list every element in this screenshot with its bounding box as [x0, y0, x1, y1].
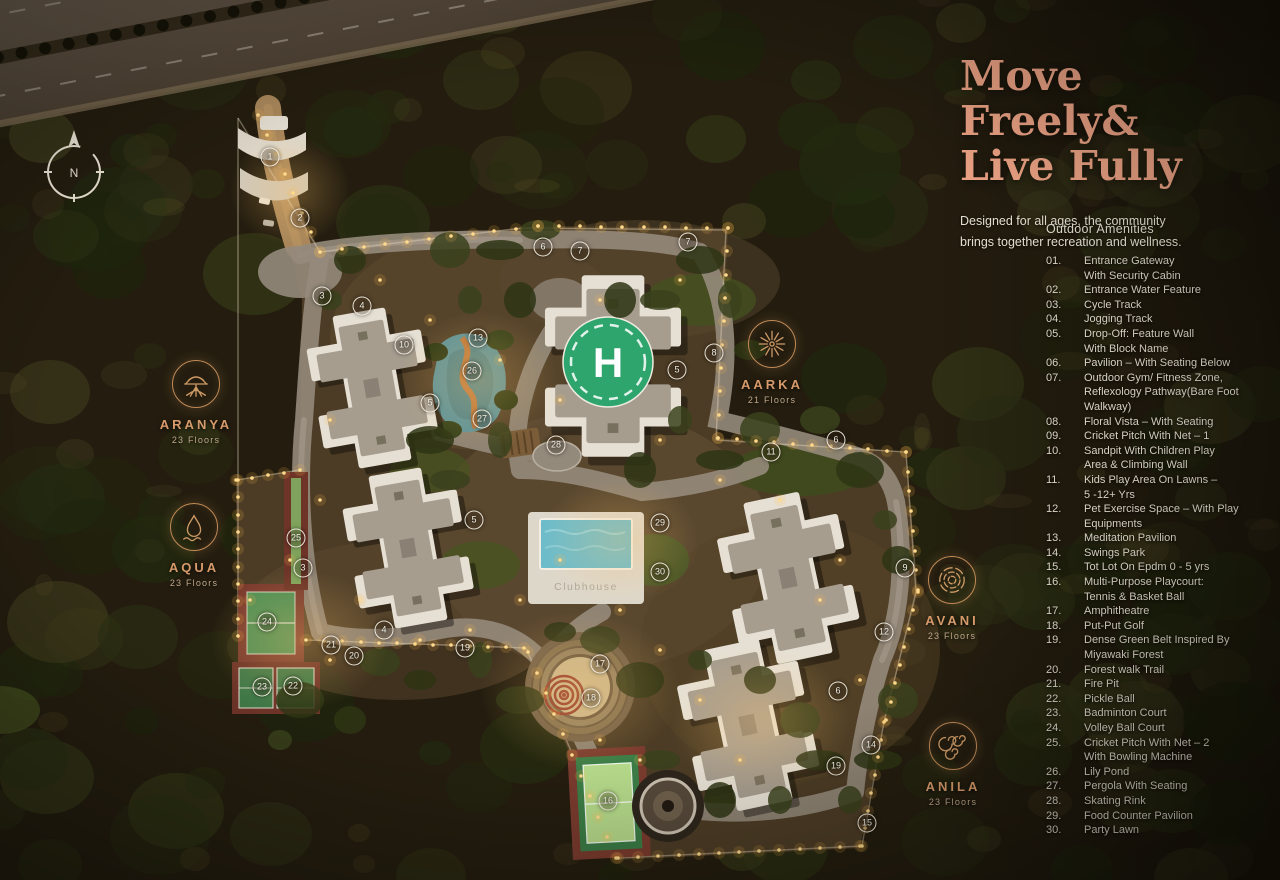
amenity-number: 11. — [1046, 473, 1084, 502]
amenity-item-29: 29.Food Counter Pavilion — [1046, 809, 1268, 824]
tower-label-aqua: AQUA23 Floors — [119, 503, 269, 588]
amenity-item-23: 23.Badminton Court — [1046, 706, 1268, 721]
amenity-text: Drop-Off: Feature Wall With Block Name — [1084, 327, 1194, 356]
amenity-item-30: 30.Party Lawn — [1046, 823, 1268, 838]
tower-name: AQUA — [169, 560, 219, 575]
droplet-icon — [170, 503, 218, 551]
tower-floors: 23 Floors — [170, 578, 218, 588]
amenity-item-11: 11.Kids Play Area On Lawns – 5 -12+ Yrs — [1046, 473, 1268, 502]
amenity-text: Amphitheatre — [1084, 604, 1149, 619]
map-marker-7: 7 — [571, 242, 590, 261]
amenity-item-07: 07.Outdoor Gym/ Fitness Zone, Reflexolog… — [1046, 371, 1268, 415]
amenity-number: 05. — [1046, 327, 1084, 356]
amenity-number: 25. — [1046, 736, 1084, 765]
tower-label-anila: ANILA23 Floors — [878, 722, 1028, 807]
tower-floors: 23 Floors — [172, 435, 220, 445]
map-marker-11: 11 — [762, 443, 781, 462]
amenity-number: 16. — [1046, 575, 1084, 604]
amenity-text: Jogging Track — [1084, 312, 1152, 327]
amenity-text: Lily Pond — [1084, 765, 1129, 780]
map-marker-27: 27 — [473, 410, 492, 429]
amenity-text: Swings Park — [1084, 546, 1145, 561]
amenity-text: Entrance Water Feature — [1084, 283, 1201, 298]
amenity-item-20: 20.Forest walk Trail — [1046, 663, 1268, 678]
amenity-text: Cricket Pitch With Net – 1 — [1084, 429, 1209, 444]
compass-north-label: N — [70, 166, 79, 180]
amenity-number: 30. — [1046, 823, 1084, 838]
amenity-item-14: 14.Swings Park — [1046, 546, 1268, 561]
amenity-item-03: 03.Cycle Track — [1046, 298, 1268, 313]
amenity-text: Entrance Gateway With Security Cabin — [1084, 254, 1181, 283]
map-marker-2: 2 — [291, 209, 310, 228]
amenity-number: 03. — [1046, 298, 1084, 313]
amenity-text: Cycle Track — [1084, 298, 1141, 313]
water-feature — [632, 770, 704, 842]
map-marker-21: 21 — [322, 636, 341, 655]
map-marker-10: 10 — [395, 336, 414, 355]
amenity-number: 28. — [1046, 794, 1084, 809]
amenity-number: 06. — [1046, 356, 1084, 371]
map-marker-22: 22 — [284, 677, 303, 696]
map-marker-19: 19 — [456, 639, 475, 658]
map-marker-20: 20 — [345, 647, 364, 666]
map-marker-7: 7 — [679, 233, 698, 252]
amenity-item-02: 02.Entrance Water Feature — [1046, 283, 1268, 298]
amenity-number: 29. — [1046, 809, 1084, 824]
amenity-number: 17. — [1046, 604, 1084, 619]
map-marker-25: 25 — [287, 529, 306, 548]
amenity-number: 24. — [1046, 721, 1084, 736]
amenity-text: Meditation Pavilion — [1084, 531, 1176, 546]
amenity-number: 23. — [1046, 706, 1084, 721]
tower-label-aranya: ARANYA23 Floors — [121, 360, 271, 445]
title-line-2: Live Fully — [960, 144, 1260, 189]
amenity-item-04: 04.Jogging Track — [1046, 312, 1268, 327]
map-marker-16: 16 — [599, 792, 618, 811]
amenity-number: 15. — [1046, 560, 1084, 575]
helipad: H — [563, 317, 653, 407]
amenity-item-05: 05.Drop-Off: Feature Wall With Block Nam… — [1046, 327, 1268, 356]
map-marker-30: 30 — [651, 563, 670, 582]
map-marker-6: 6 — [829, 682, 848, 701]
map-marker-29: 29 — [651, 514, 670, 533]
map-marker-13: 13 — [469, 329, 488, 348]
amenity-number: 19. — [1046, 633, 1084, 662]
amenity-text: Pavilion – With Seating Below — [1084, 356, 1230, 371]
amenity-item-21: 21.Fire Pit — [1046, 677, 1268, 692]
amenity-item-08: 08.Floral Vista – With Seating — [1046, 415, 1268, 430]
helipad-label: H — [593, 339, 623, 386]
amenity-text: Forest walk Trail — [1084, 663, 1164, 678]
tower-label-avani: AVANI23 Floors — [877, 556, 1027, 641]
amenity-item-10: 10.Sandpit With Children Play Area & Cli… — [1046, 444, 1268, 473]
amenity-item-17: 17.Amphitheatre — [1046, 604, 1268, 619]
map-marker-3: 3 — [294, 559, 313, 578]
amenity-number: 08. — [1046, 415, 1084, 430]
amenity-item-22: 22.Pickle Ball — [1046, 692, 1268, 707]
amenity-number: 22. — [1046, 692, 1084, 707]
map-marker-5: 5 — [465, 511, 484, 530]
amenity-text: Dense Green Belt Inspired By Miyawaki Fo… — [1084, 633, 1230, 662]
tower-label-aarka: AARKA21 Floors — [697, 320, 847, 405]
amenity-number: 27. — [1046, 779, 1084, 794]
map-marker-26: 26 — [463, 362, 482, 381]
amenity-item-18: 18.Put-Put Golf — [1046, 619, 1268, 634]
map-marker-15: 15 — [858, 814, 877, 833]
amenity-item-09: 09.Cricket Pitch With Net – 1 — [1046, 429, 1268, 444]
amenity-item-13: 13.Meditation Pavilion — [1046, 531, 1268, 546]
tower-name: AARKA — [741, 377, 803, 392]
map-marker-17: 17 — [591, 655, 610, 674]
compass-rose: N — [36, 128, 112, 208]
spiral-icon — [929, 722, 977, 770]
amenity-text: Pet Exercise Space – With Play Equipment… — [1084, 502, 1239, 531]
amenity-text: Fire Pit — [1084, 677, 1119, 692]
amenity-text: Cricket Pitch With Net – 2 With Bowling … — [1084, 736, 1209, 765]
amenity-text: Multi-Purpose Playcourt: Tennis & Basket… — [1084, 575, 1204, 604]
map-marker-6: 6 — [827, 431, 846, 450]
map-marker-23: 23 — [253, 678, 272, 697]
site-plan-page: Clubhouse H — [0, 0, 1280, 880]
amenity-item-16: 16.Multi-Purpose Playcourt: Tennis & Bas… — [1046, 575, 1268, 604]
amenity-item-26: 26.Lily Pond — [1046, 765, 1268, 780]
amenity-text: Food Counter Pavilion — [1084, 809, 1193, 824]
map-marker-19: 19 — [827, 757, 846, 776]
amenity-text: Skating Rink — [1084, 794, 1146, 809]
tower-floors: 21 Floors — [748, 395, 796, 405]
tower-name: ARANYA — [160, 417, 232, 432]
amenity-text: Outdoor Gym/ Fitness Zone, Reflexology P… — [1084, 371, 1239, 415]
amenity-number: 02. — [1046, 283, 1084, 298]
amenity-number: 20. — [1046, 663, 1084, 678]
amenity-number: 10. — [1046, 444, 1084, 473]
amenity-text: Pickle Ball — [1084, 692, 1135, 707]
amenity-item-12: 12.Pet Exercise Space – With Play Equipm… — [1046, 502, 1268, 531]
map-marker-4: 4 — [375, 621, 394, 640]
amenity-number: 09. — [1046, 429, 1084, 444]
tower-name: AVANI — [925, 613, 979, 628]
amenity-number: 04. — [1046, 312, 1084, 327]
map-marker-24: 24 — [258, 613, 277, 632]
amenity-item-28: 28.Skating Rink — [1046, 794, 1268, 809]
amenity-text: Sandpit With Children Play Area & Climbi… — [1084, 444, 1215, 473]
map-marker-5: 5 — [668, 361, 687, 380]
amenity-item-06: 06.Pavilion – With Seating Below — [1046, 356, 1268, 371]
tower-name: ANILA — [926, 779, 981, 794]
page-title: Move Freely& Live Fully — [960, 54, 1260, 189]
sun-icon — [748, 320, 796, 368]
amenity-item-25: 25.Cricket Pitch With Net – 2 With Bowli… — [1046, 736, 1268, 765]
amenity-item-19: 19.Dense Green Belt Inspired By Miyawaki… — [1046, 633, 1268, 662]
amenity-text: Volley Ball Court — [1084, 721, 1165, 736]
amenity-number: 01. — [1046, 254, 1084, 283]
tower-floors: 23 Floors — [929, 797, 977, 807]
map-marker-3: 3 — [313, 287, 332, 306]
amenity-text: Floral Vista – With Seating — [1084, 415, 1213, 430]
amenities-list: 01.Entrance Gateway With Security Cabin0… — [1046, 254, 1268, 838]
rings-icon — [928, 556, 976, 604]
amenity-number: 26. — [1046, 765, 1084, 780]
amenities-panel: Outdoor Amenities 01.Entrance Gateway Wi… — [1046, 222, 1268, 838]
amenity-number: 21. — [1046, 677, 1084, 692]
amenity-text: Badminton Court — [1084, 706, 1167, 721]
amenity-text: Tot Lot On Epdm 0 - 5 yrs — [1084, 560, 1209, 575]
amenity-item-24: 24.Volley Ball Court — [1046, 721, 1268, 736]
amenity-item-01: 01.Entrance Gateway With Security Cabin — [1046, 254, 1268, 283]
amenity-text: Party Lawn — [1084, 823, 1139, 838]
map-marker-5: 5 — [421, 394, 440, 413]
map-marker-28: 28 — [547, 436, 566, 455]
title-line-1: Move Freely& — [960, 54, 1260, 144]
map-marker-1: 1 — [261, 148, 280, 167]
amenities-heading: Outdoor Amenities — [1046, 222, 1268, 236]
amenity-number: 07. — [1046, 371, 1084, 415]
map-marker-4: 4 — [353, 297, 372, 316]
tower-floors: 23 Floors — [928, 631, 976, 641]
map-marker-18: 18 — [582, 689, 601, 708]
map-marker-6: 6 — [534, 238, 553, 257]
amenity-number: 14. — [1046, 546, 1084, 561]
amenity-text: Pergola With Seating — [1084, 779, 1187, 794]
tree-icon — [172, 360, 220, 408]
amenity-item-15: 15.Tot Lot On Epdm 0 - 5 yrs — [1046, 560, 1268, 575]
amenity-text: Put-Put Golf — [1084, 619, 1144, 634]
amenity-number: 12. — [1046, 502, 1084, 531]
amenity-number: 13. — [1046, 531, 1084, 546]
amenity-item-27: 27.Pergola With Seating — [1046, 779, 1268, 794]
amenity-text: Kids Play Area On Lawns – 5 -12+ Yrs — [1084, 473, 1217, 502]
amenity-number: 18. — [1046, 619, 1084, 634]
